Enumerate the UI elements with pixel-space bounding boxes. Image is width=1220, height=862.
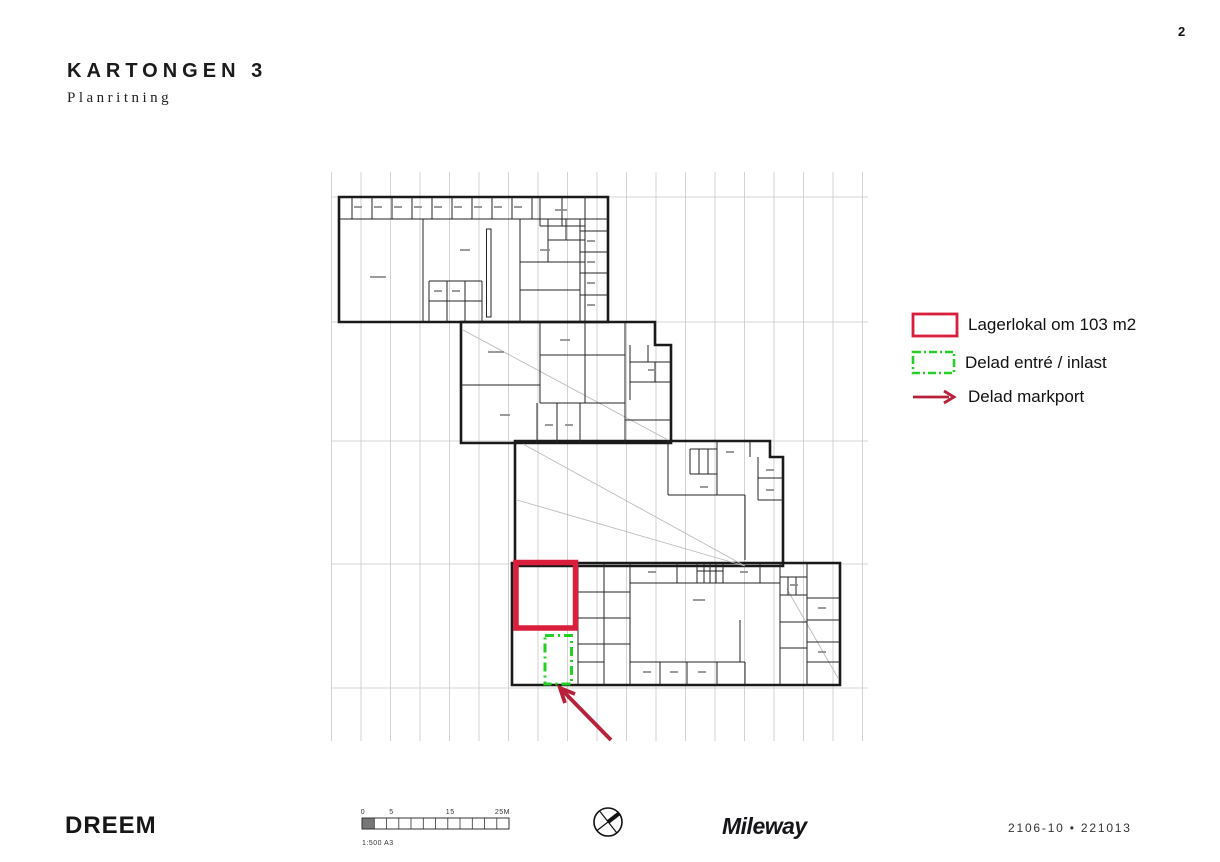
north-compass-icon [590, 804, 626, 840]
legend-label: Lagerlokal om 103 m2 [968, 315, 1136, 335]
scale-tick-5: 5 [389, 809, 393, 816]
red-outline-swatch-icon [911, 312, 959, 338]
page: 2 KARTONGEN 3 Planritning [0, 0, 1220, 862]
legend-item-markport: Delad markport [911, 387, 1136, 407]
legend-item-lagerlokal: Lagerlokal om 103 m2 [911, 312, 1136, 338]
scale-tick-25: 25M [495, 809, 510, 816]
scale-bar: 0 5 15 25M 1:500 A3 [358, 805, 518, 850]
legend-label: Delad entré / inlast [965, 353, 1107, 373]
dreem-logo: DREEM [65, 812, 157, 840]
legend-label: Delad markport [968, 387, 1084, 407]
legend-item-delad-entre: Delad entré / inlast [911, 350, 1136, 375]
scale-tick-15: 15 [446, 809, 455, 816]
scale-tick-0: 0 [361, 809, 365, 816]
mileway-logo: Mileway [722, 813, 807, 840]
floor-plan [0, 0, 1220, 862]
legend: Lagerlokal om 103 m2 Delad entré / inlas… [911, 312, 1136, 419]
red-arrow-icon [911, 389, 959, 405]
document-reference: 2106-10 • 221013 [1008, 821, 1132, 835]
green-dashed-swatch-icon [911, 350, 956, 375]
scale-ratio: 1:500 A3 [362, 840, 394, 847]
skylight-strip [487, 229, 492, 317]
